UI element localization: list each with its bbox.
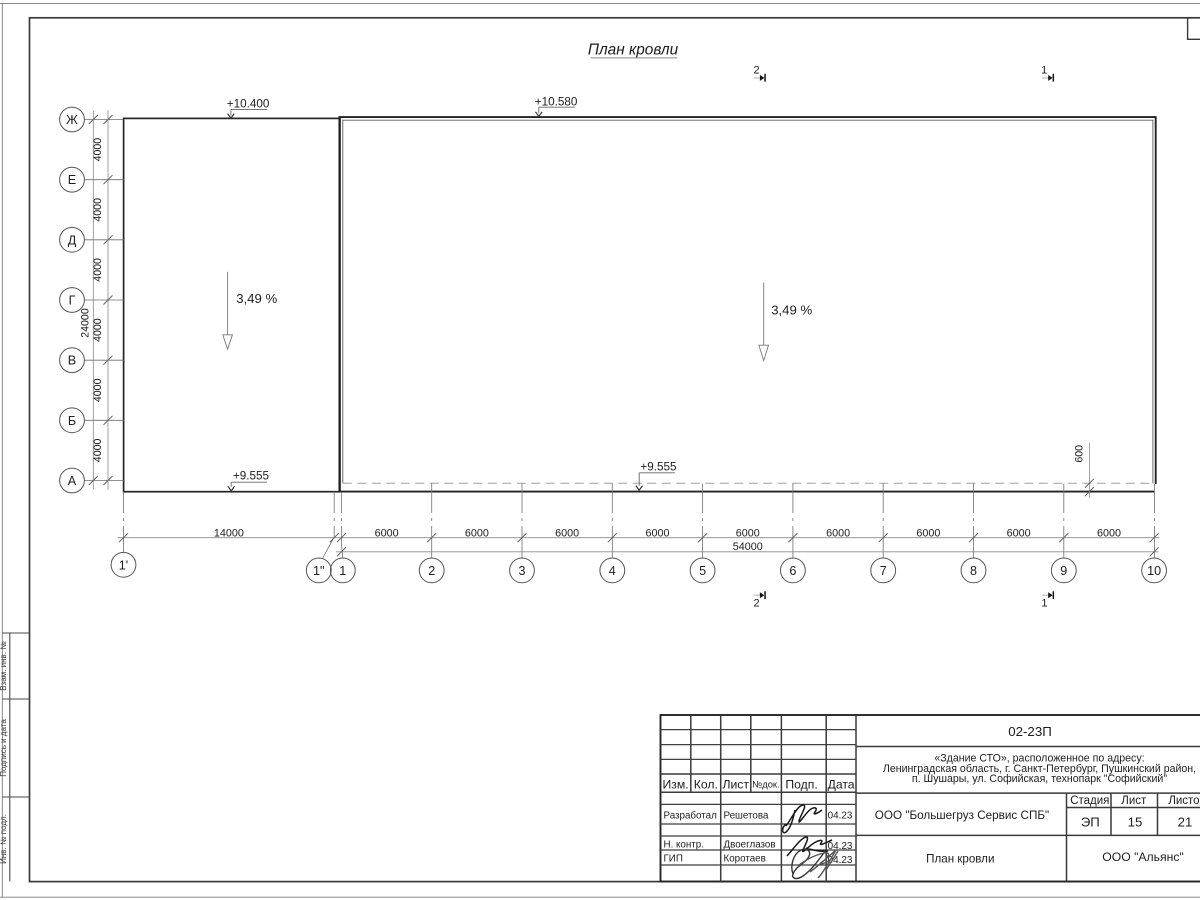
svg-text:4000: 4000 — [92, 138, 104, 162]
svg-text:Дата: Дата — [828, 778, 855, 792]
svg-text:4000: 4000 — [92, 378, 104, 402]
svg-text:1: 1 — [1041, 597, 1047, 609]
svg-text:04.23: 04.23 — [828, 811, 853, 822]
svg-text:В: В — [68, 354, 76, 368]
svg-text:5: 5 — [699, 564, 706, 578]
svg-text:А: А — [68, 474, 77, 488]
svg-text:1': 1' — [119, 558, 128, 572]
svg-text:6000: 6000 — [1007, 527, 1031, 539]
svg-text:6000: 6000 — [375, 527, 399, 539]
svg-text:Разработал: Разработал — [664, 810, 718, 821]
svg-text:План кровли: План кровли — [588, 42, 679, 59]
svg-text:6000: 6000 — [465, 527, 489, 539]
svg-text:п. Шушары, ул. Софийская, техн: п. Шушары, ул. Софийская, технопарк "Соф… — [912, 773, 1167, 785]
svg-text:Д: Д — [68, 233, 77, 247]
svg-text:02-23П: 02-23П — [1008, 724, 1052, 739]
svg-text:Кол.: Кол. — [694, 778, 718, 792]
svg-text:Б: Б — [68, 414, 76, 428]
svg-text:2: 2 — [754, 597, 760, 609]
svg-text:3: 3 — [518, 564, 525, 578]
svg-text:ЭП: ЭП — [1081, 815, 1100, 830]
svg-text:+10.580: +10.580 — [535, 95, 578, 108]
svg-text:1": 1" — [313, 564, 324, 578]
svg-text:9: 9 — [1060, 564, 1067, 578]
svg-text:ООО "Большегруз Сервис СПБ": ООО "Большегруз Сервис СПБ" — [875, 809, 1049, 822]
svg-text:План кровли: План кровли — [926, 852, 994, 865]
svg-text:24000: 24000 — [79, 308, 91, 338]
svg-text:4000: 4000 — [92, 198, 104, 222]
svg-text:Е: Е — [68, 173, 76, 187]
svg-text:10: 10 — [1147, 564, 1161, 578]
svg-text:6000: 6000 — [645, 527, 669, 539]
svg-text:6000: 6000 — [736, 527, 760, 539]
svg-text:№док.: №док. — [752, 779, 779, 790]
svg-text:54000: 54000 — [733, 541, 763, 553]
svg-text:Ж: Ж — [66, 113, 78, 127]
svg-text:1: 1 — [339, 564, 346, 578]
svg-text:6000: 6000 — [555, 527, 579, 539]
svg-text:ООО "Альянс": ООО "Альянс" — [1102, 850, 1184, 864]
svg-text:7: 7 — [880, 564, 887, 578]
svg-text:Двоеглазов: Двоеглазов — [724, 840, 776, 851]
svg-text:6000: 6000 — [826, 527, 850, 539]
svg-text:Г: Г — [69, 294, 76, 308]
svg-text:ГИП: ГИП — [664, 854, 683, 865]
svg-text:6000: 6000 — [916, 527, 940, 539]
svg-text:Подпись и дата: Подпись и дата — [0, 719, 8, 777]
svg-text:Коротаев: Коротаев — [724, 854, 766, 865]
svg-text:Решетова: Решетова — [724, 810, 769, 821]
svg-text:600: 600 — [1074, 445, 1086, 463]
svg-text:4000: 4000 — [92, 439, 104, 463]
svg-text:3,49 %: 3,49 % — [771, 303, 812, 318]
svg-text:4: 4 — [609, 564, 616, 578]
svg-text:+9.555: +9.555 — [233, 470, 270, 483]
svg-text:6000: 6000 — [1097, 527, 1121, 539]
svg-text:Инв. № подл.: Инв. № подл. — [0, 814, 8, 864]
svg-text:Лист: Лист — [1121, 795, 1147, 807]
svg-text:+9.555: +9.555 — [640, 461, 677, 474]
svg-text:Изм.: Изм. — [663, 778, 689, 792]
svg-text:1: 1 — [1041, 65, 1047, 77]
svg-text:Взам. инв. №: Взам. инв. № — [0, 641, 8, 691]
svg-text:15: 15 — [1128, 815, 1143, 830]
svg-text:Лист: Лист — [722, 778, 749, 792]
svg-text:3,49 %: 3,49 % — [236, 291, 277, 306]
svg-text:+10.400: +10.400 — [227, 98, 270, 111]
svg-text:Стадия: Стадия — [1070, 795, 1109, 807]
svg-text:4000: 4000 — [92, 258, 104, 282]
svg-text:14000: 14000 — [214, 527, 244, 539]
svg-text:Листов: Листов — [1168, 795, 1200, 807]
svg-text:Подп.: Подп. — [785, 778, 817, 792]
svg-text:8: 8 — [970, 564, 977, 578]
svg-text:4000: 4000 — [92, 318, 104, 342]
svg-text:21: 21 — [1178, 815, 1193, 830]
svg-text:Н. контр.: Н. контр. — [664, 840, 704, 851]
svg-text:2: 2 — [753, 65, 759, 77]
svg-text:04.23: 04.23 — [828, 841, 853, 852]
svg-text:6: 6 — [789, 564, 796, 578]
svg-text:2: 2 — [428, 564, 435, 578]
